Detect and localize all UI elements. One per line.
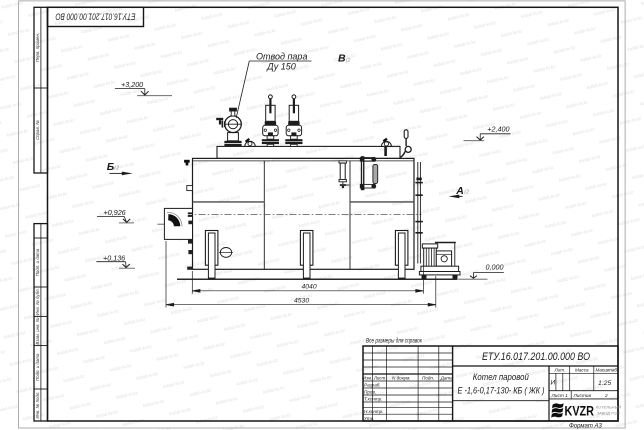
svg-text:Лит.: Лит.: [554, 368, 566, 373]
svg-text:N докум.: N докум.: [392, 376, 411, 381]
svg-text:Н.контр.: Н.контр.: [364, 409, 383, 414]
svg-text:Изм.: Изм.: [363, 376, 372, 381]
svg-text:Ду 150: Ду 150: [266, 61, 295, 71]
svg-text:4530: 4530: [294, 298, 309, 305]
svg-text:0,000: 0,000: [486, 263, 504, 272]
svg-text:Утв.: Утв.: [364, 416, 374, 421]
svg-text:Справ. №: Справ. №: [35, 120, 40, 140]
svg-text:Инв. № дубл.: Инв. № дубл.: [35, 288, 40, 315]
svg-text:Листов: Листов: [573, 393, 592, 399]
svg-text:ЕТУ.16.017.201.00.000 ВО: ЕТУ.16.017.201.00.000 ВО: [55, 12, 135, 22]
svg-text:Взам. инв. №: Взам. инв. №: [35, 317, 40, 344]
svg-text:Котел паровой: Котел паровой: [473, 372, 530, 383]
svg-text:(2: (2: [114, 166, 119, 172]
svg-text:(2: (2: [464, 189, 469, 195]
svg-text:И: И: [551, 379, 556, 386]
svg-text:Инв. № подл.: Инв. № подл.: [35, 391, 40, 418]
svg-text:Перв. примен.: Перв. примен.: [35, 33, 40, 62]
svg-text:Разраб.: Разраб.: [364, 383, 381, 388]
svg-text:Лист 1: Лист 1: [551, 393, 569, 399]
svg-text:1:25: 1:25: [598, 380, 611, 387]
svg-text:ЗАВОД РЭП: ЗАВОД РЭП: [597, 411, 620, 416]
svg-text:Формат А3: Формат А3: [569, 423, 602, 429]
svg-text:Лист: Лист: [373, 376, 385, 381]
svg-text:4040: 4040: [302, 284, 317, 291]
svg-text:+3,200: +3,200: [121, 80, 143, 89]
svg-text:2: 2: [604, 393, 608, 399]
svg-text:Пров.: Пров.: [364, 390, 376, 395]
svg-text:Подп. и дата: Подп. и дата: [35, 353, 40, 381]
svg-text:ЕТУ.16.017.201.00.000 ВО: ЕТУ.16.017.201.00.000 ВО: [482, 351, 590, 363]
svg-text:(2: (2: [346, 58, 351, 64]
svg-text:Подп.: Подп.: [422, 376, 434, 381]
svg-text:КОТЕЛЬНЫЙ: КОТЕЛЬНЫЙ: [596, 405, 621, 410]
svg-text:Масштаб: Масштаб: [596, 368, 618, 373]
svg-text:Масса: Масса: [575, 368, 589, 373]
svg-text:Отвод пара: Отвод пара: [256, 52, 307, 62]
svg-text:+0,926: +0,926: [104, 208, 126, 217]
svg-text:Т.контр.: Т.контр.: [364, 397, 383, 402]
svg-text:Подп. и дата: Подп. и дата: [35, 248, 40, 276]
svg-text:Все размеры для справок: Все размеры для справок: [366, 337, 423, 345]
svg-text:А: А: [455, 185, 464, 197]
svg-text:KVZR: KVZR: [565, 404, 595, 420]
svg-text:Дата: Дата: [440, 376, 454, 381]
svg-text:+0,136: +0,136: [103, 253, 125, 262]
svg-text:Е -1,6-0,17-130- КБ ( ЖК ): Е -1,6-0,17-130- КБ ( ЖК ): [458, 386, 545, 396]
svg-text:+2,400: +2,400: [487, 124, 509, 133]
